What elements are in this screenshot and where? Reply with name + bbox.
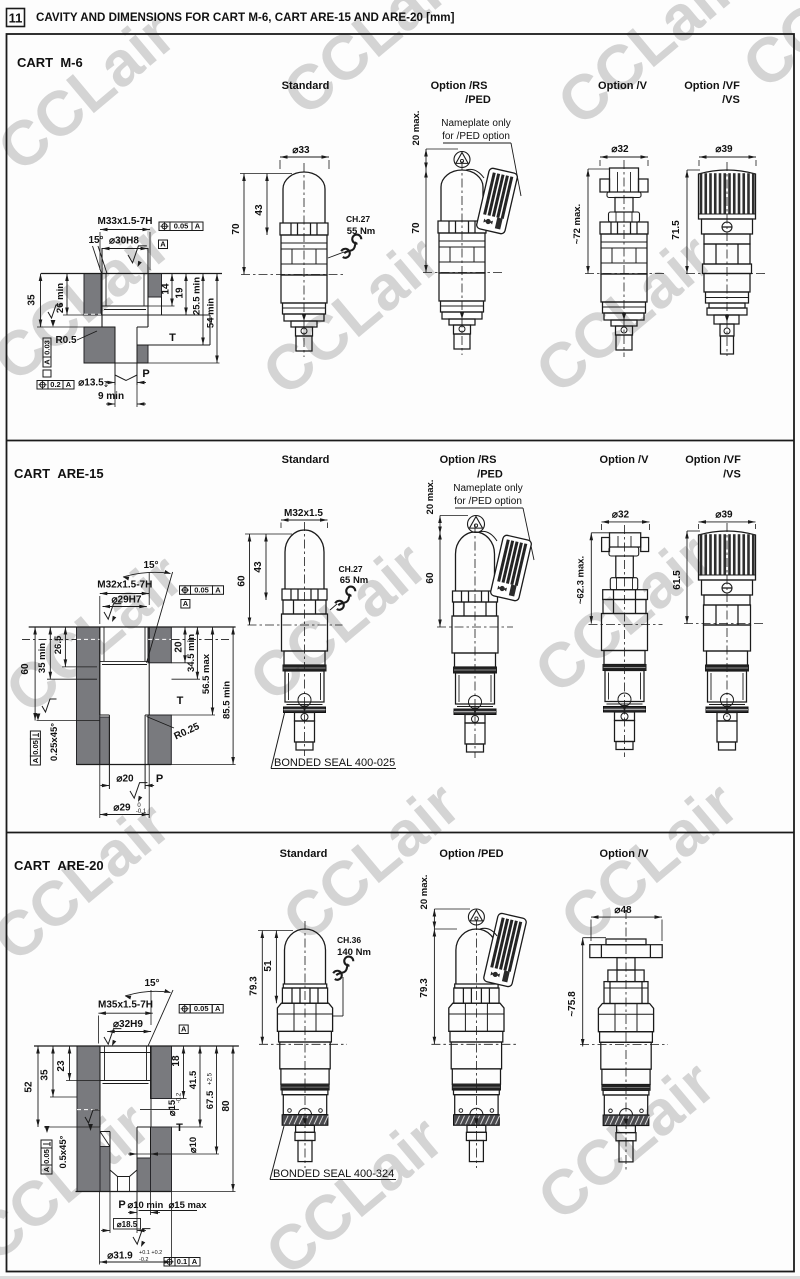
svg-text:for /PED option: for /PED option [454, 496, 522, 507]
svg-text:~75.8: ~75.8 [567, 991, 578, 1017]
svg-text:60: 60 [425, 572, 436, 584]
svg-text:0.05: 0.05 [42, 1149, 51, 1164]
svg-text:43: 43 [254, 204, 265, 216]
svg-text:55 Nm: 55 Nm [347, 226, 376, 237]
svg-text:~72 max.: ~72 max. [572, 204, 583, 244]
svg-text:25.5 min: 25.5 min [192, 277, 203, 315]
svg-text:26 min: 26 min [55, 283, 66, 313]
svg-text:11: 11 [9, 11, 23, 26]
svg-text:140 Nm: 140 Nm [337, 947, 371, 958]
svg-text:CART M-6: CART M-6 [17, 55, 83, 70]
svg-text:P: P [142, 368, 149, 380]
svg-text:34.5 min: 34.5 min [186, 634, 197, 672]
svg-text:~62.3 max.: ~62.3 max. [576, 556, 587, 604]
svg-text:35: 35 [40, 1069, 51, 1081]
svg-text:A: A [183, 599, 189, 608]
svg-text:⌀48: ⌀48 [614, 905, 632, 916]
svg-text:43: 43 [253, 561, 264, 573]
svg-text:Option /V: Option /V [598, 80, 648, 92]
svg-text:⌀33: ⌀33 [292, 145, 310, 156]
svg-text:CART ARE-20: CART ARE-20 [14, 858, 104, 873]
svg-text:A: A [181, 1025, 187, 1034]
svg-text:CCLair: CCLair [270, 769, 473, 955]
svg-text:⌀39: ⌀39 [715, 144, 733, 155]
svg-text:A: A [43, 359, 52, 365]
svg-text:54 min: 54 min [206, 298, 217, 328]
svg-text:0.05: 0.05 [174, 222, 189, 231]
svg-text:CCLair: CCLair [237, 529, 440, 715]
svg-text:67.5: 67.5 [205, 1090, 216, 1109]
svg-text:T: T [169, 332, 176, 344]
svg-text:Option /RS: Option /RS [431, 80, 488, 92]
svg-text:+2.5: +2.5 [208, 1072, 214, 1085]
svg-text:15°: 15° [144, 978, 159, 989]
svg-text:65 Nm: 65 Nm [340, 575, 369, 586]
svg-text:Option /RS: Option /RS [440, 454, 497, 466]
svg-text:CH.27: CH.27 [338, 564, 362, 574]
svg-text:70: 70 [411, 222, 422, 234]
svg-text:Option /V: Option /V [600, 454, 650, 466]
svg-text:Nameplate only: Nameplate only [441, 118, 510, 129]
svg-text:⌀32: ⌀32 [611, 144, 629, 155]
svg-text:⌀20: ⌀20 [116, 774, 134, 785]
svg-text:+0.1 +0.2: +0.1 +0.2 [139, 1250, 162, 1256]
svg-text:/PED: /PED [465, 94, 491, 106]
svg-text:P: P [118, 1199, 125, 1211]
svg-text:71.5: 71.5 [671, 220, 682, 240]
svg-text:BONDED SEAL 400-025: BONDED SEAL 400-025 [274, 757, 395, 769]
svg-text:M32x1.5-7H: M32x1.5-7H [97, 580, 152, 591]
svg-text:Standard: Standard [282, 80, 330, 92]
svg-text:M32x1.5: M32x1.5 [284, 508, 323, 519]
svg-text:T: T [177, 695, 184, 707]
svg-text:/VS: /VS [722, 94, 740, 106]
svg-text:⌀32: ⌀32 [612, 510, 630, 521]
svg-text:Option /VF: Option /VF [684, 80, 740, 92]
svg-text:R0.5: R0.5 [55, 335, 77, 346]
svg-text:A: A [215, 1004, 221, 1013]
svg-text:79.3: 79.3 [419, 978, 430, 998]
svg-text:52: 52 [24, 1081, 35, 1093]
svg-text:CH.36: CH.36 [337, 935, 361, 945]
svg-text:A: A [192, 1257, 198, 1266]
svg-text:0.05: 0.05 [194, 585, 209, 594]
svg-text:35 min: 35 min [37, 643, 48, 673]
svg-text:-0.2: -0.2 [177, 1092, 183, 1103]
svg-text:R0.25: R0.25 [173, 721, 202, 742]
svg-text:Standard: Standard [282, 454, 330, 466]
svg-text:CCLair: CCLair [0, 789, 183, 975]
svg-text:60: 60 [20, 663, 31, 675]
svg-text:79.3: 79.3 [249, 976, 260, 996]
svg-text:18: 18 [171, 1055, 182, 1067]
svg-text:61.5: 61.5 [672, 570, 683, 590]
svg-text:⌀18.5: ⌀18.5 [117, 1220, 138, 1229]
svg-text:15°: 15° [143, 560, 158, 571]
svg-text:CCLair: CCLair [548, 769, 751, 955]
svg-text:A: A [66, 380, 72, 389]
svg-text:Nameplate only: Nameplate only [453, 483, 522, 494]
svg-text:CCLair: CCLair [0, 0, 188, 185]
svg-text:15°: 15° [88, 235, 103, 246]
svg-text:19: 19 [175, 287, 186, 299]
svg-text:85.5 min: 85.5 min [222, 681, 233, 719]
svg-text:⌀10: ⌀10 [188, 1137, 199, 1153]
svg-text:/PED: /PED [477, 469, 503, 481]
svg-text:20 max.: 20 max. [425, 480, 436, 515]
svg-text:CH.27: CH.27 [346, 214, 370, 224]
svg-text:⌀29: ⌀29 [113, 803, 131, 814]
svg-text:A: A [42, 1166, 51, 1172]
svg-text:9 min: 9 min [98, 391, 124, 402]
svg-text:20 max.: 20 max. [419, 875, 430, 910]
svg-text:56.5 max: 56.5 max [201, 653, 212, 694]
svg-text:/VS: /VS [723, 469, 741, 481]
svg-text:0.25x45°: 0.25x45° [49, 723, 60, 761]
svg-text:23: 23 [56, 1060, 67, 1072]
svg-text:A: A [160, 240, 166, 249]
svg-text:0.2: 0.2 [50, 380, 60, 389]
svg-text:60: 60 [237, 575, 248, 587]
svg-text:80: 80 [221, 1100, 232, 1112]
svg-text:Standard: Standard [280, 848, 328, 860]
svg-text:Option /PED: Option /PED [439, 848, 503, 860]
svg-text:CCLair: CCLair [730, 0, 800, 102]
svg-text:20: 20 [174, 641, 185, 653]
svg-text:70: 70 [231, 223, 242, 235]
svg-text:M35x1.5-7H: M35x1.5-7H [98, 1000, 153, 1011]
svg-text:BONDED SEAL 400-324: BONDED SEAL 400-324 [273, 1168, 394, 1180]
svg-text:41.5: 41.5 [188, 1070, 199, 1089]
svg-text:⌀13.5: ⌀13.5 [78, 378, 104, 389]
svg-text:⌀31.9: ⌀31.9 [107, 1251, 133, 1262]
svg-text:0.05: 0.05 [31, 740, 40, 755]
svg-text:26.5: 26.5 [53, 635, 64, 654]
svg-text:A: A [195, 222, 201, 231]
svg-text:CAVITY AND DIMENSIONS FOR CART: CAVITY AND DIMENSIONS FOR CART M-6, CART… [36, 11, 455, 24]
svg-text:CART ARE-15: CART ARE-15 [14, 466, 104, 481]
svg-text:0.5x45°: 0.5x45° [58, 1135, 69, 1168]
svg-text:0.03: 0.03 [43, 340, 52, 355]
svg-text:14: 14 [161, 283, 172, 295]
svg-text:P: P [156, 773, 163, 785]
svg-text:Option /VF: Option /VF [685, 454, 741, 466]
svg-text:⌀39: ⌀39 [715, 510, 733, 521]
svg-text:⌀30H8: ⌀30H8 [109, 236, 139, 247]
svg-text:for /PED option: for /PED option [442, 131, 510, 142]
svg-text:CCLair: CCLair [545, 0, 748, 139]
svg-text:M33x1.5-7H: M33x1.5-7H [97, 216, 152, 227]
svg-text:A: A [215, 585, 221, 594]
svg-text:T: T [176, 1122, 183, 1134]
svg-text:Option /V: Option /V [600, 848, 650, 860]
svg-text:⌀10 min ⌀15 max: ⌀10 min ⌀15 max [127, 1200, 207, 1211]
svg-text:51: 51 [263, 960, 274, 972]
svg-text:0.05: 0.05 [194, 1004, 209, 1013]
svg-text:0.1: 0.1 [177, 1257, 187, 1266]
svg-text:20 max.: 20 max. [411, 111, 422, 146]
svg-text:35: 35 [27, 294, 38, 306]
svg-text:A: A [31, 757, 40, 763]
